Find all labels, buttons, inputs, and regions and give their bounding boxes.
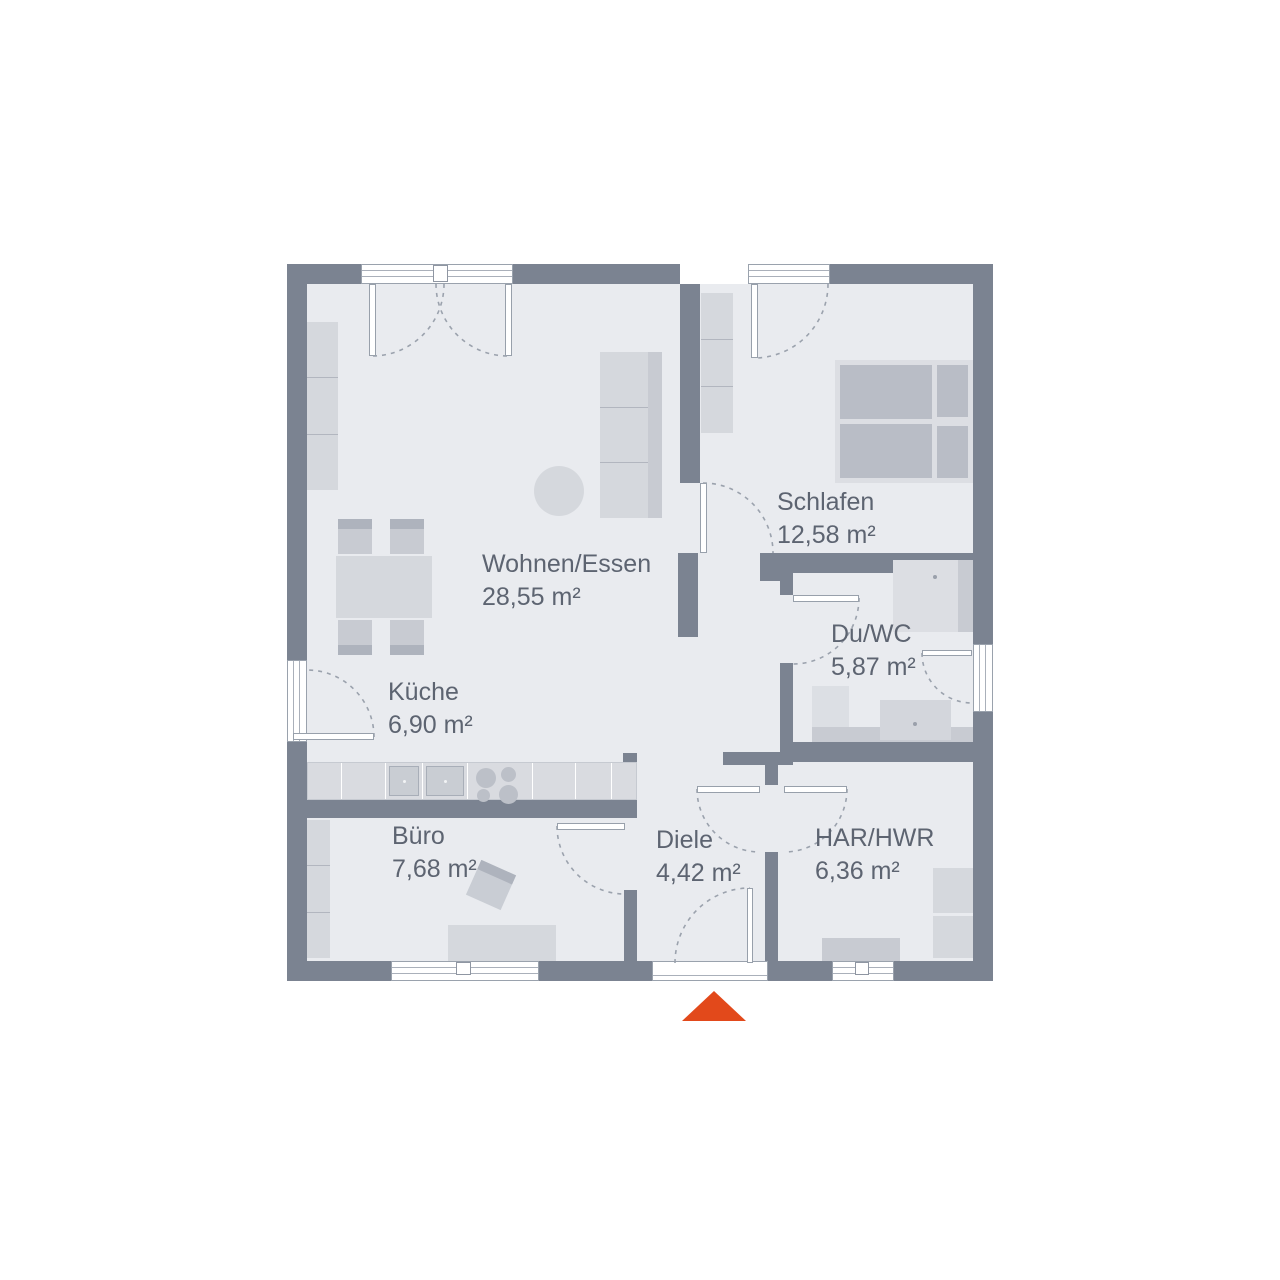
sofa-seat: [600, 352, 648, 407]
room-label-har-hwr: HAR/HWR 6,36 m²: [815, 822, 934, 888]
room-name: Küche: [388, 676, 473, 709]
room-label-du-wc: Du/WC 5,87 m²: [831, 618, 916, 684]
door-swing-arcs: [0, 0, 1280, 1280]
sideboard: [307, 322, 338, 490]
dining-chair: [390, 620, 424, 655]
shower-drain-icon: [933, 575, 937, 579]
room-label-schlafen: Schlafen 12,58 m²: [777, 486, 876, 552]
sink: [880, 700, 951, 740]
room-label-wohnen-essen: Wohnen/Essen 28,55 m²: [482, 548, 651, 614]
bed-mattress: [840, 424, 932, 478]
dishwasher: [389, 766, 419, 796]
room-area: 6,36 m²: [815, 855, 934, 888]
room-label-buero: Büro 7,68 m²: [392, 820, 477, 886]
room-label-kueche: Küche 6,90 m²: [388, 676, 473, 742]
sofa-seats: [600, 352, 648, 518]
counter-cabinet: [612, 763, 636, 799]
washer: [933, 868, 973, 913]
oven: [426, 766, 464, 796]
sideboard-segment: [307, 378, 338, 433]
wardrobe: [701, 293, 733, 433]
bed-mattress: [840, 365, 932, 419]
kitchen-counter: [307, 762, 637, 800]
chair-backrest: [338, 519, 372, 529]
counter-cabinet: [386, 763, 422, 799]
dining-chair: [338, 620, 372, 655]
room-area: 5,87 m²: [831, 651, 916, 684]
chair-backrest: [338, 645, 372, 655]
counter-cabinet: [308, 763, 341, 799]
room-area: 6,90 m²: [388, 709, 473, 742]
wardrobe-segment: [701, 340, 733, 386]
utility-counter: [822, 938, 900, 961]
room-name: Büro: [392, 820, 477, 853]
entrance-arrow-icon: [682, 991, 746, 1021]
sofa-seat: [600, 408, 648, 463]
chair-backrest: [390, 645, 424, 655]
burner-icon: [476, 768, 496, 788]
room-name: HAR/HWR: [815, 822, 934, 855]
cooktop: [468, 763, 532, 799]
room-name: Du/WC: [831, 618, 916, 651]
room-area: 28,55 m²: [482, 581, 651, 614]
shelf-segment: [307, 820, 330, 865]
room-area: 4,42 m²: [656, 857, 741, 890]
sofa-seat: [600, 463, 648, 518]
counter-cabinet: [423, 763, 467, 799]
dining-chair: [390, 519, 424, 554]
toilet: [812, 686, 849, 727]
shower-panel: [958, 560, 973, 632]
chair-backrest: [390, 519, 424, 529]
dryer: [933, 916, 973, 958]
burner-icon: [499, 785, 518, 804]
room-area: 12,58 m²: [777, 519, 876, 552]
bed-pillow: [937, 426, 968, 478]
room-name: Diele: [656, 824, 741, 857]
bed-pillow: [937, 365, 968, 417]
shelf-segment: [307, 913, 330, 958]
burner-icon: [501, 767, 516, 782]
sofa-backrest: [648, 352, 662, 518]
room-area: 7,68 m²: [392, 853, 477, 886]
dining-chair: [338, 519, 372, 554]
sideboard-segment: [307, 322, 338, 377]
room-name: Wohnen/Essen: [482, 548, 651, 581]
floor-plan-page: Wohnen/Essen 28,55 m² Schlafen 12,58 m² …: [0, 0, 1280, 1280]
counter-cabinet: [342, 763, 385, 799]
desk: [448, 925, 556, 961]
coffee-table: [534, 466, 584, 516]
dining-table: [336, 556, 432, 618]
room-name: Schlafen: [777, 486, 876, 519]
wardrobe-segment: [701, 387, 733, 433]
shelf-segment: [307, 866, 330, 911]
counter-cabinet: [533, 763, 575, 799]
sideboard-segment: [307, 435, 338, 490]
burner-icon: [477, 789, 490, 802]
counter-cabinet: [576, 763, 611, 799]
office-shelf: [307, 820, 330, 958]
wardrobe-segment: [701, 293, 733, 339]
room-label-diele: Diele 4,42 m²: [656, 824, 741, 890]
sink-drain-icon: [913, 722, 917, 726]
